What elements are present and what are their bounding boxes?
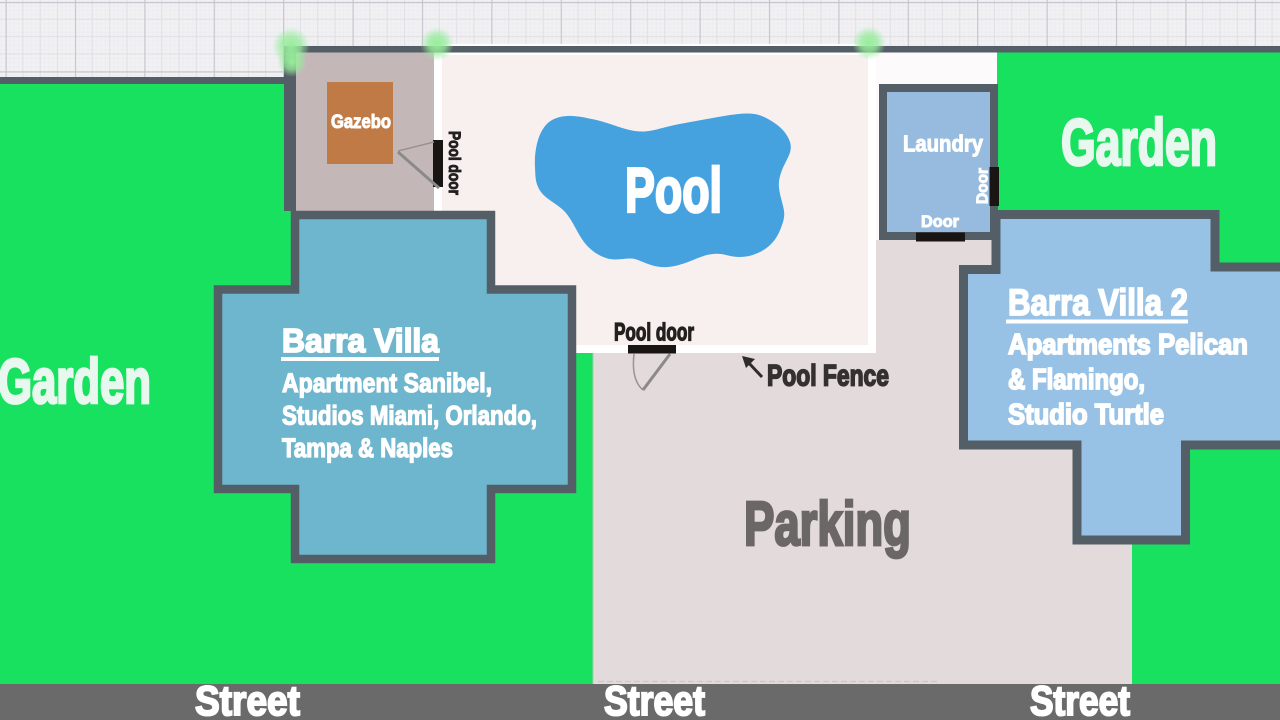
svg-text:Apartment Sanibel,: Apartment Sanibel,	[282, 368, 492, 398]
svg-text:Pool door: Pool door	[445, 131, 464, 195]
svg-text:Street: Street	[1030, 677, 1130, 720]
svg-text:Laundry: Laundry	[903, 131, 983, 157]
svg-text:Pool: Pool	[625, 156, 722, 226]
svg-text:& Flamingo,: & Flamingo,	[1008, 364, 1145, 396]
svg-text:Garden: Garden	[0, 347, 151, 417]
svg-text:Street: Street	[195, 677, 300, 720]
svg-text:Barra Villa: Barra Villa	[282, 322, 440, 359]
svg-text:Studios Miami, Orlando,: Studios Miami, Orlando,	[282, 401, 537, 431]
svg-text:Apartments Pelican: Apartments Pelican	[1008, 329, 1248, 361]
svg-text:Door: Door	[921, 212, 959, 231]
svg-text:Studio Turtle: Studio Turtle	[1008, 399, 1164, 431]
svg-text:Gazebo: Gazebo	[331, 112, 391, 133]
svg-text:Tampa & Naples: Tampa & Naples	[282, 433, 453, 463]
svg-text:Garden: Garden	[1061, 105, 1217, 179]
svg-text:Barra Villa 2: Barra Villa 2	[1008, 282, 1188, 323]
svg-text:Pool door: Pool door	[614, 319, 694, 347]
svg-text:Pool Fence: Pool Fence	[767, 360, 889, 393]
svg-text:Street: Street	[604, 677, 705, 720]
svg-text:Parking: Parking	[744, 490, 911, 559]
svg-text:Door: Door	[975, 168, 992, 204]
